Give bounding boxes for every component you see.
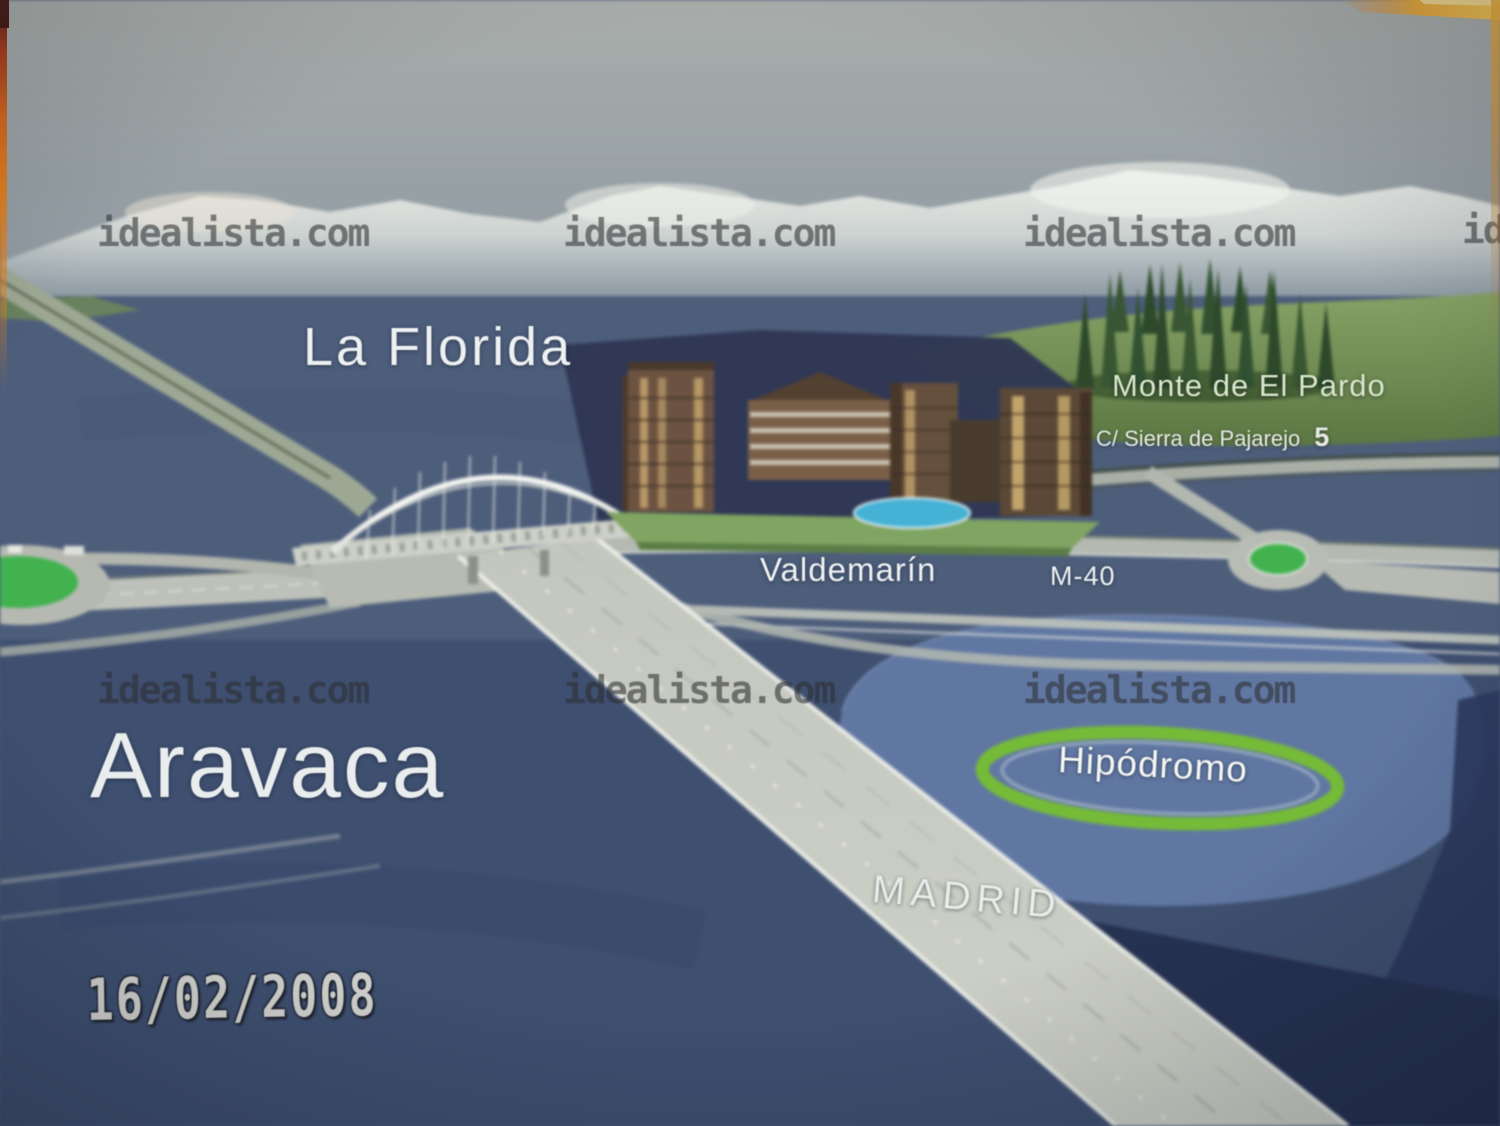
photographed-location-map: { "photo": { "date_stamp": "16/02/2008",… <box>0 0 1500 1126</box>
frame-top-left-corner <box>0 0 9 28</box>
frame-right-edge <box>1491 0 1500 340</box>
photo-frame-corner <box>0 0 1500 1126</box>
map-photo-stage: La Florida Aravaca Valdemarín M-40 MADRI… <box>0 0 1500 1126</box>
